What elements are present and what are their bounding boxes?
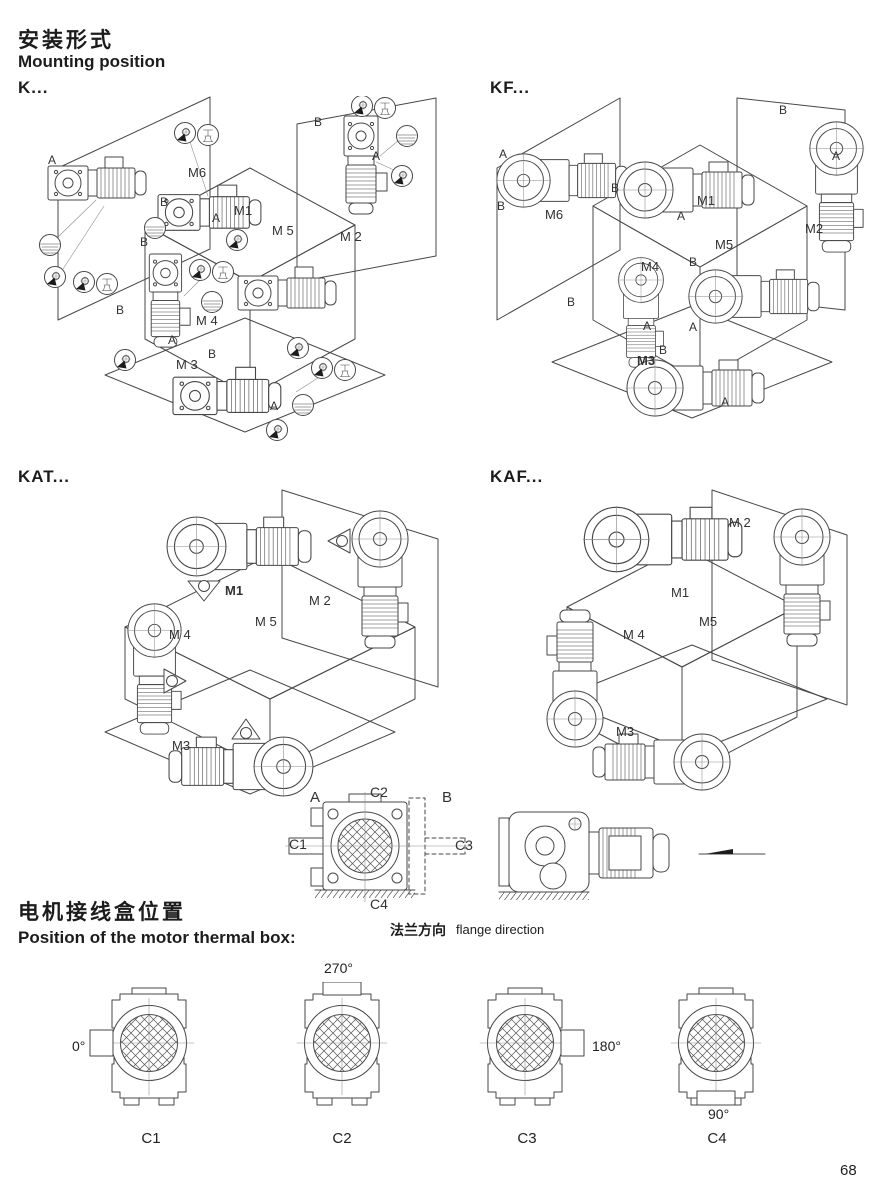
shaft-label-b-m3: B [659,344,667,356]
gearmotor-m6 [48,157,146,200]
oil-drain-icon [115,350,136,371]
position-label-m4: M 4 [169,628,191,641]
shaft-label-b-m6: B [140,236,148,248]
position-label-m4: M 4 [196,314,218,327]
flange-label-b: B [442,790,452,805]
position-label-m3: M 3 [176,358,198,371]
gearmotor-m1 [166,516,311,577]
view-name-c2: C2 [322,1130,362,1147]
flange-caption-en: flange direction [456,922,544,937]
shaft-label-b-m4: B [116,304,124,316]
shaft-label-a-m2: A [832,150,840,162]
page-title-zh: 安装形式 [18,24,114,54]
torque-arm-bushing [167,676,178,687]
flange-label-c2: C2 [370,785,388,799]
position-label-m3: M3 [172,739,190,752]
position-label-m1: M1 [234,204,252,217]
gearmotor-m2 [773,508,831,646]
gearmotor-m4 [127,603,182,734]
ground-hatching [315,890,415,898]
terminal-box-right [561,1030,584,1056]
position-label-m4: M4 [641,260,659,273]
section-label-kf: KF... [490,78,530,98]
drain-breather-icons [312,358,356,381]
shaft-label-a-m2: A [372,150,380,162]
torque-arm-bushing [337,536,348,547]
shaft-label-a-m3: A [270,400,278,412]
oil-level-icon [202,292,223,313]
angle-label-c2: 270° [324,960,353,976]
angle-label-c1: 0° [72,1038,85,1054]
motor-front-view-c4 [656,982,776,1114]
position-label-m5: M 5 [272,224,294,237]
oil-drain-icon [392,166,413,187]
flange-label-c1: C1 [289,837,307,851]
position-label-m3: M3 [616,725,634,738]
motor-front-view-c1 [89,982,209,1114]
flange-label-c4: C4 [370,897,388,911]
gearmotor-m5 [238,267,336,310]
gearmotor-m6 [496,153,627,208]
shaft-label-a-m6: A [499,148,507,160]
flange-label-a: A [310,790,320,805]
position-label-m6: M6 [188,166,206,179]
mounting-diagram-kaf: M 2 M1 M5 M 4 M3 [487,487,875,827]
drain-breather-icons [175,123,219,146]
shaft-label-b-m1: B [160,196,168,208]
gearmotor-m5 [688,269,819,324]
gearmotor-side-view [497,806,702,906]
oil-drain-icon [227,230,248,251]
mounting-diagram-k: M6 A B M1 B A M 5 M 2 B A M 4 B A M 3 B … [8,96,468,464]
torque-arm-bushing [241,728,252,739]
oil-drain-icon [288,338,309,359]
terminal-box-top [323,982,361,995]
direction-arrow-icon [697,845,767,861]
drain-breather-icons [352,96,396,119]
view-name-c1: C1 [131,1130,171,1147]
terminal-box-bottom [697,1091,735,1105]
oil-level-icon [40,235,61,256]
position-label-m6: M6 [545,208,563,221]
shaft-label-b-m3: B [208,348,216,360]
kf-diagram-drawing [487,96,875,448]
position-label-m3: M3 [637,354,655,367]
shaft-label-b-m4: B [567,296,575,308]
position-label-m2: M2 [805,222,823,235]
position-label-m1: M1 [671,586,689,599]
drain-breather-icons [190,260,234,283]
shaft-label-b-m2: B [314,116,322,128]
shaft-label-b-m1: B [611,182,619,194]
oil-level-icon [293,395,314,416]
position-label-m5: M 5 [255,615,277,628]
position-label-m2: M 2 [729,516,751,529]
shaft-label-a-m3: A [721,396,729,408]
section-label-k: K... [18,78,48,98]
shaft-label-a-m6: A [48,154,56,166]
gearmotor-m1 [583,506,742,573]
flange-caption-zh: 法兰方向 [390,920,446,940]
view-name-c3: C3 [507,1130,547,1147]
terminal-box-left [90,1030,113,1056]
shaft-label-a-m4: A [643,320,651,332]
angle-label-c3: 180° [592,1038,621,1054]
mounting-diagram-kf: M6 A B M1 B A M2 B A M5 B A M4 B A M3 B … [487,96,875,448]
shaft-label-b-m6: B [497,200,505,212]
catalog-page: { "page": { "title_zh": "安装形式", "title_e… [0,0,875,1191]
oil-drain-icon [45,267,66,288]
motor-front-view-c2 [282,982,402,1114]
shaft-label-a-m5: A [689,321,697,333]
shaft-label-a-m1: A [677,210,685,222]
position-label-m1: M1 [225,584,243,597]
shaft-label-b-m5: B [689,256,697,268]
flange-direction-diagram: A C2 B C1 C3 C4 [285,778,485,923]
k-diagram-drawing [8,96,468,464]
section-label-kat: KAT... [18,467,70,487]
position-label-m2: M 2 [340,230,362,243]
kaf-diagram-drawing [487,487,875,827]
gearmotor-m2 [351,510,409,648]
angle-label-c4: 90° [708,1106,729,1122]
oil-drain-icon [267,420,288,441]
page-number: 68 [840,1162,857,1179]
position-label-m4: M 4 [623,628,645,641]
oil-level-icon [397,126,418,147]
gearmotor-m2 [344,116,387,214]
thermal-title-zh: 电机接线盒位置 [18,896,186,926]
section-label-kaf: KAF... [490,467,543,487]
page-title-en: Mounting position [18,52,165,72]
shaft-label-a-m4: A [168,334,176,346]
position-label-m5: M5 [715,238,733,251]
gearmotor-m4 [546,610,604,748]
position-label-m5: M5 [699,615,717,628]
torque-arm-bushing [199,581,210,592]
position-label-m2: M 2 [309,594,331,607]
flange-label-c3: C3 [455,838,473,852]
position-label-m1: M1 [697,194,715,207]
motor-front-view-c3 [465,982,585,1114]
shaft-label-b-m2: B [779,104,787,116]
view-name-c4: C4 [697,1130,737,1147]
shaft-label-a-m1: A [212,212,220,224]
thermal-title-en: Position of the motor thermal box: [18,928,296,948]
drain-breather-icons [74,272,118,295]
gearmotor-m3 [173,367,281,414]
ground-hatching [499,892,589,900]
